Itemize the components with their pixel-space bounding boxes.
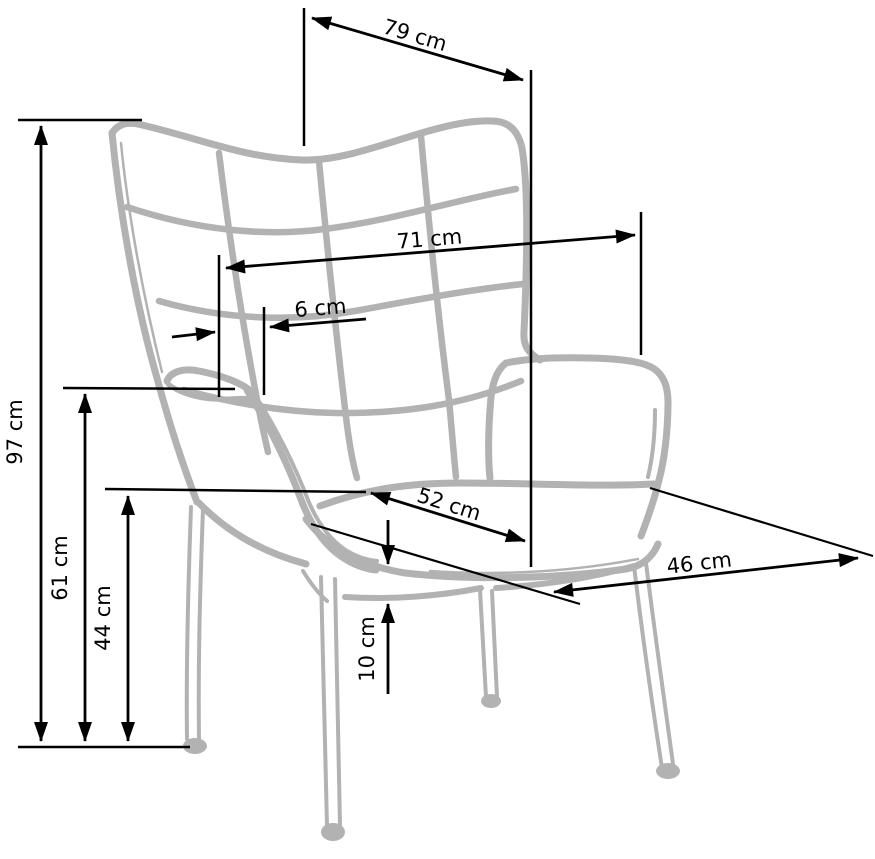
dim-label-97cm: 97 cm bbox=[3, 399, 27, 464]
seat-cushion-top-edge bbox=[320, 483, 654, 506]
ext-line-seat-depth-back bbox=[650, 488, 873, 556]
backrest-outline-left bbox=[112, 133, 197, 502]
front-right-foot bbox=[321, 823, 345, 841]
quilt-seam-vertical-3 bbox=[421, 136, 456, 477]
rear-left-foot bbox=[481, 694, 501, 708]
dim-label-44cm: 44 cm bbox=[91, 585, 115, 650]
dim-label-52cm: 52 cm bbox=[414, 483, 484, 526]
dim-label-61cm: 61 cm bbox=[48, 535, 72, 600]
dim-label-10cm: 10 cm bbox=[355, 616, 379, 681]
rear-right-foot bbox=[656, 763, 680, 779]
left-side-under-edge bbox=[199, 503, 306, 564]
dimension-labels: 79 cm 71 cm 6 cm 97 cm 61 cm 44 cm 52 cm… bbox=[3, 14, 733, 681]
front-left-leg bbox=[187, 507, 203, 741]
dimension-drawing-page: 79 cm 71 cm 6 cm 97 cm 61 cm 44 cm 52 cm… bbox=[0, 0, 875, 859]
ext-line-seat-height bbox=[105, 489, 366, 492]
dim-label-6cm: 6 cm bbox=[294, 294, 348, 322]
rear-left-leg bbox=[480, 590, 497, 697]
armchair-dimension-diagram: 79 cm 71 cm 6 cm 97 cm 61 cm 44 cm 52 cm… bbox=[0, 0, 875, 859]
front-right-leg bbox=[303, 571, 340, 826]
under-seat-rail-front bbox=[345, 588, 481, 598]
dim-arrow-wing-offset-left bbox=[172, 332, 215, 337]
rear-right-leg bbox=[634, 563, 673, 768]
right-armrest-inner-edge bbox=[489, 363, 506, 478]
ext-line-armrest-height bbox=[63, 388, 235, 389]
right-armrest-right-piping bbox=[648, 410, 655, 477]
dim-label-79cm: 79 cm bbox=[380, 14, 450, 56]
